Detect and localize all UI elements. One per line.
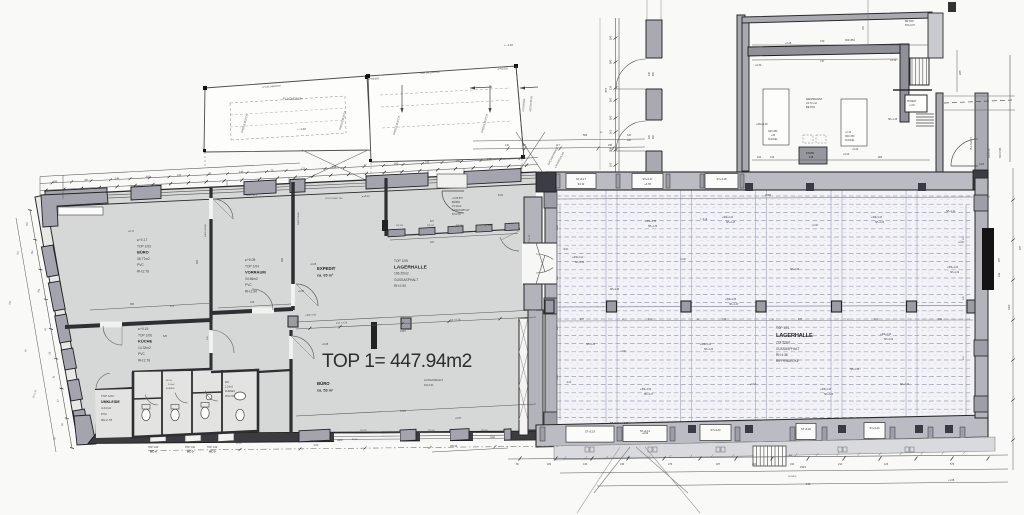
svg-text:FLACHDACH: FLACHDACH (283, 97, 303, 101)
svg-text:BÜRO: BÜRO (317, 381, 330, 386)
svg-text:PW 105: PW 105 (396, 225, 404, 227)
svg-text:106: 106 (53, 179, 58, 183)
svg-text:300×1543: 300×1543 (999, 147, 1002, 158)
svg-text:SH+4.25: SH+4.25 (648, 226, 658, 228)
svg-text:ST+3.18: ST+3.18 (717, 177, 727, 181)
svg-text:150: 150 (425, 160, 430, 164)
svg-text:4.24m2: 4.24m2 (101, 406, 111, 410)
svg-text:BETON: BETON (806, 105, 815, 109)
svg-text:TOP 1/05: TOP 1/05 (394, 259, 408, 263)
svg-text:●+0.08: ●+0.08 (245, 258, 255, 262)
svg-text:KÜCHE: KÜCHE (138, 339, 153, 344)
svg-text:SH+4.36: SH+4.36 (610, 289, 620, 291)
svg-text:120: 120 (627, 134, 632, 137)
svg-text:3.54m2: 3.54m2 (168, 384, 176, 386)
svg-text:SH+4.25: SH+4.25 (875, 222, 885, 224)
svg-text:ST+1.46: ST+1.46 (529, 234, 531, 243)
svg-text:EXPEDIT: EXPEDIT (317, 266, 336, 271)
svg-text:RH 4.36: RH 4.36 (776, 353, 788, 357)
svg-text:TOP 1/03: TOP 1/03 (137, 244, 151, 248)
svg-text:15.44m2: 15.44m2 (452, 205, 462, 208)
svg-text:TOP 1/12: TOP 1/12 (207, 446, 218, 449)
svg-text:ST+3.20: ST+3.20 (801, 427, 811, 431)
svg-text:HZ +2.78: HZ +2.78 (450, 318, 461, 322)
svg-text:+0.03: +0.03 (750, 384, 757, 386)
svg-text:+300+4.43: +300+4.43 (871, 217, 883, 219)
svg-text:575: 575 (950, 463, 955, 466)
svg-text:+0.30: +0.30 (755, 64, 762, 67)
svg-text:35 55: 35 55 (352, 439, 358, 441)
svg-text:DACHRINNE: DACHRINNE (204, 223, 207, 237)
svg-text:GRW: GRW (337, 440, 343, 442)
svg-text:314: 314 (648, 318, 653, 321)
svg-text:300×350: 300×350 (845, 135, 855, 138)
svg-text:SH+4.34: SH+4.34 (946, 211, 956, 213)
svg-text:RH:2.78: RH:2.78 (101, 418, 112, 422)
svg-text:UMKLEIDE: UMKLEIDE (101, 400, 120, 404)
svg-text:PW 90: PW 90 (481, 430, 488, 432)
svg-text:RH:2.90: RH:2.90 (394, 284, 406, 288)
svg-text:+40: +40 (771, 134, 776, 137)
svg-text:+300+4.43: +300+4.43 (820, 389, 832, 391)
svg-text:WC-H: WC-H (150, 451, 157, 454)
svg-text:142 +2.78: 142 +2.78 (336, 321, 348, 325)
svg-text:298: 298 (332, 165, 337, 169)
svg-text:●+0.17: ●+0.17 (137, 238, 147, 242)
svg-text:1083: 1083 (557, 224, 559, 230)
svg-text:214: 214 (838, 463, 843, 466)
svg-text:TOP 1/06: TOP 1/06 (138, 333, 152, 337)
svg-text:HEIZRAUM: HEIZRAUM (806, 97, 822, 101)
svg-text:140: 140 (456, 158, 461, 162)
svg-text:FLIESEN: FLIESEN (225, 390, 235, 393)
svg-text:PVC: PVC (138, 352, 145, 356)
svg-text:GUSSASPHALT: GUSSASPHALT (776, 347, 799, 351)
svg-text:130: 130 (583, 463, 588, 466)
svg-text:TOP 1/01: TOP 1/01 (776, 326, 790, 330)
svg-text:565: 565 (583, 134, 588, 137)
svg-text:PVC: PVC (137, 263, 144, 267)
svg-text:+0.02: +0.02 (958, 242, 965, 244)
svg-text:+0.00: +0.00 (680, 259, 687, 261)
svg-text:180: 180 (547, 463, 552, 466)
svg-text:SH+4.26: SH+4.26 (704, 349, 714, 351)
svg-text:561: 561 (195, 259, 199, 264)
svg-text:+300+4.44: +300+4.44 (572, 257, 584, 259)
svg-text:TOP 1/04: TOP 1/04 (245, 264, 259, 268)
svg-text:242: 242 (998, 272, 1001, 277)
svg-text:PW 90: PW 90 (428, 430, 435, 432)
svg-text:PW 90: PW 90 (360, 430, 367, 432)
svg-text:PVC: PVC (101, 412, 108, 416)
svg-text:206: 206 (609, 35, 613, 40)
svg-text:+0.35: +0.35 (785, 42, 792, 45)
svg-text:300×350: 300×350 (768, 130, 778, 133)
svg-text:SH+4.26: SH+4.26 (790, 269, 800, 271)
svg-text:GUSSASPHALT: GUSSASPHALT (394, 278, 418, 282)
svg-text:134: 134 (770, 156, 775, 159)
svg-text:365: 365 (130, 303, 135, 306)
svg-text:ST+2.14 ↔ -0.00: ST+2.14 ↔ -0.00 (610, 422, 629, 425)
svg-text:BÜRO: BÜRO (452, 200, 461, 204)
svg-text:RH+3.37: RH+3.37 (905, 24, 916, 27)
svg-text:+4.78: +4.78 (644, 182, 651, 186)
svg-text:080: 080 (609, 59, 613, 64)
svg-text:015: 015 (609, 129, 613, 134)
svg-text:120: 120 (648, 134, 651, 139)
svg-text:180: 180 (522, 144, 527, 147)
svg-text:PODEST: PODEST (907, 101, 917, 103)
svg-text:+ -4.48: + -4.48 (504, 43, 513, 47)
svg-text:ST+3.17: ST+3.17 (643, 177, 653, 181)
svg-text:050: 050 (609, 115, 613, 120)
svg-text:ca. 65 m²: ca. 65 m² (317, 274, 334, 278)
svg-text:RH:2.78: RH:2.78 (138, 359, 150, 363)
svg-text:1083: 1083 (557, 374, 559, 380)
svg-text:+300+4.44: +300+4.44 (700, 344, 712, 346)
svg-text:43.70 m2: 43.70 m2 (806, 101, 817, 105)
svg-text:+FRD500: +FRD500 (497, 66, 509, 71)
svg-text:140: 140 (505, 144, 510, 147)
svg-text:2068: 2068 (765, 193, 771, 197)
svg-text:106.35m2: 106.35m2 (394, 272, 409, 276)
svg-text:36.77m2: 36.77m2 (137, 257, 150, 261)
svg-text:●+2.14: ●+2.14 (362, 195, 370, 198)
svg-text:-3.98: -3.98 (805, 484, 811, 486)
svg-text:300×0.66: 300×0.66 (988, 148, 991, 158)
svg-text:94 10: 94 10 (578, 182, 585, 186)
svg-text:130: 130 (609, 85, 613, 90)
svg-text:PVC: PVC (245, 283, 252, 287)
svg-text:484: 484 (878, 156, 883, 159)
svg-text:SH+4.25: SH+4.25 (575, 262, 585, 264)
svg-text:+0.08: +0.08 (310, 263, 317, 266)
svg-text:300: 300 (609, 97, 613, 102)
svg-text:+300+4.45: +300+4.45 (645, 221, 657, 223)
svg-text:+0.07 371: +0.07 371 (246, 194, 257, 197)
svg-text:FLIESEN: FLIESEN (166, 388, 175, 390)
svg-text:RH:2.39: RH:2.39 (225, 395, 234, 398)
svg-text:146: 146 (115, 176, 120, 180)
svg-text:RIPPENDECKE: RIPPENDECKE (776, 359, 799, 363)
svg-text:SH+4.25: SH+4.25 (824, 394, 834, 396)
svg-text:148: 148 (487, 157, 492, 161)
svg-text:SOCKEL: SOCKEL (845, 139, 855, 142)
svg-text:SH+4.29: SH+4.29 (884, 339, 894, 341)
svg-text:300: 300 (652, 71, 655, 76)
svg-text:PW 105: PW 105 (456, 225, 464, 227)
svg-text:PW 105: PW 105 (427, 225, 435, 227)
svg-text:(9.9MPf): (9.9MPf) (788, 476, 797, 478)
svg-text:743: 743 (820, 39, 825, 43)
svg-text:625: 625 (163, 335, 168, 338)
svg-text:+1.68: +1.68 (948, 479, 955, 482)
svg-text:TOP 1= 447.94m2: TOP 1= 447.94m2 (322, 351, 472, 372)
svg-text:●+0.15: ●+0.15 (138, 327, 148, 331)
svg-text:WC-H: WC-H (166, 380, 172, 382)
svg-text:148: 148 (239, 170, 244, 174)
svg-text:PULTDACH: PULTDACH (970, 137, 973, 150)
svg-text:B.20: B.20 (498, 194, 504, 197)
svg-text:34.56m2: 34.56m2 (245, 277, 258, 281)
svg-text:SH+4.26: SH+4.26 (900, 384, 910, 386)
svg-text:160: 160 (394, 162, 399, 166)
svg-text:GUSSASPHALT: GUSSASPHALT (424, 378, 443, 382)
svg-text:237: 237 (998, 257, 1001, 262)
svg-text:317: 317 (798, 318, 803, 321)
svg-text:+300+3.28: +300+3.28 (756, 123, 768, 126)
svg-text:2323: 2323 (800, 465, 806, 469)
svg-text:ST+3.20: ST+3.20 (870, 426, 880, 430)
svg-text:561: 561 (280, 257, 284, 262)
svg-text:1049: 1049 (400, 329, 407, 333)
svg-text:312: 312 (938, 318, 943, 321)
svg-text:+300+4.45: +300+4.45 (947, 267, 959, 269)
svg-text:ST+3.17: ST+3.17 (576, 177, 586, 181)
svg-text:+0.08: +0.08 (322, 343, 329, 346)
svg-text:110: 110 (146, 175, 151, 179)
svg-text:237: 237 (1019, 245, 1022, 250)
svg-text:SH+4.25: SH+4.25 (729, 304, 739, 306)
svg-text:123: 123 (884, 463, 889, 466)
svg-text:RH:2.91: RH:2.91 (424, 383, 434, 387)
svg-text:116: 116 (752, 463, 757, 466)
svg-text:774.52m2: 774.52m2 (776, 341, 790, 345)
svg-text:+0.10: +0.10 (890, 59, 897, 62)
svg-text:SOCKEL: SOCKEL (768, 138, 778, 141)
svg-text:SOK.DOWEL 700: SOK.DOWEL 700 (325, 198, 343, 200)
svg-text:PW 105: PW 105 (484, 225, 492, 227)
svg-text:171: 171 (301, 166, 306, 170)
svg-text:GUSSASPHALT: GUSSASPHALT (452, 209, 470, 212)
svg-text:190: 190 (790, 463, 795, 466)
svg-text:LAGERHALLE: LAGERHALLE (776, 333, 813, 339)
svg-text:WC-D: WC-D (187, 451, 194, 454)
svg-text:277: 277 (580, 318, 585, 321)
svg-text:+0.17: +0.17 (128, 230, 135, 233)
svg-text:+0.00: +0.00 (620, 351, 627, 353)
svg-text:KAMIN: KAMIN (806, 151, 814, 155)
svg-text:RH 2.92: RH 2.92 (452, 213, 461, 216)
svg-text:+300+4.45: +300+4.45 (880, 334, 892, 336)
svg-text:+0.07: +0.07 (455, 417, 462, 420)
svg-text:131: 131 (177, 173, 182, 177)
svg-text:+0.10: +0.10 (845, 131, 852, 134)
svg-text:2323: 2323 (1008, 304, 1011, 310)
svg-text:+300+4.45: +300+4.45 (725, 299, 737, 301)
svg-text:298: 298 (608, 144, 613, 147)
svg-text:SH+4.26: SH+4.26 (726, 222, 736, 224)
svg-text:SH+4.29: SH+4.29 (950, 272, 960, 274)
svg-text:+ -4.48: + -4.48 (297, 127, 306, 131)
svg-text:TOP 1/02: TOP 1/02 (101, 394, 114, 398)
svg-text:BETON: BETON (905, 20, 914, 23)
svg-text:-0.02: -0.02 (566, 382, 572, 384)
svg-text:SH+4.29: SH+4.29 (850, 369, 860, 371)
svg-text:TOP 1/10: TOP 1/10 (148, 446, 159, 449)
svg-text:RH:2.90: RH:2.90 (245, 290, 257, 294)
svg-text:= -3.19: = -3.19 (700, 219, 708, 221)
svg-text:427: 427 (430, 240, 435, 244)
svg-text:130: 130 (648, 71, 651, 76)
svg-text:ca. 53 m³: ca. 53 m³ (317, 389, 334, 393)
svg-text:WC-D: WC-D (209, 451, 216, 454)
svg-text:SH+4.25: SH+4.25 (586, 344, 596, 346)
svg-text:+300+4.43: +300+4.43 (640, 389, 652, 391)
svg-text:LAGERHALLE: LAGERHALLE (394, 264, 428, 270)
svg-text:+300+4.43: +300+4.43 (722, 217, 734, 219)
svg-text:200: 200 (652, 134, 655, 139)
svg-text:WC: WC (225, 381, 229, 384)
svg-text:187: 187 (716, 463, 721, 466)
svg-text:276: 276 (668, 463, 673, 466)
svg-text:+0.22: +0.22 (843, 153, 850, 156)
svg-text:SH+1.28: SH+1.28 (888, 119, 898, 121)
svg-text:GGF: GGF (490, 437, 496, 439)
svg-text:ST+2.13: ST+2.13 (310, 441, 319, 443)
svg-text:BÜRO: BÜRO (137, 250, 149, 255)
svg-text:+0.00: +0.00 (642, 432, 649, 435)
svg-text:857: 857 (604, 87, 608, 92)
svg-text:TOP 1/11: TOP 1/11 (185, 446, 196, 449)
svg-text:2423: 2423 (979, 164, 985, 166)
svg-text:1049: 1049 (400, 409, 407, 413)
svg-text:14.32m2: 14.32m2 (138, 346, 151, 350)
svg-text:-0.00: -0.00 (313, 445, 319, 447)
svg-text:-0.03: -0.03 (563, 249, 569, 251)
svg-text:35 25: 35 25 (236, 443, 242, 445)
svg-text:ST+3.20: ST+3.20 (711, 428, 721, 432)
svg-text:1.10m2: 1.10m2 (225, 386, 234, 389)
svg-text:DACHRINNE: DACHRINNE (297, 211, 300, 225)
svg-text:316: 316 (722, 318, 727, 321)
svg-text:103: 103 (609, 162, 613, 167)
svg-text:225: 225 (958, 70, 962, 75)
svg-text:242: 242 (757, 156, 762, 159)
svg-text:737: 737 (820, 59, 825, 63)
svg-text:166: 166 (620, 463, 625, 466)
svg-text:314: 314 (874, 318, 879, 321)
svg-text:117: 117 (556, 144, 560, 147)
svg-text:ST+3.19: ST+3.19 (585, 430, 595, 434)
svg-text:+1.52: +1.52 (909, 105, 916, 107)
svg-text:156: 156 (809, 155, 814, 159)
svg-text:+0.05: +0.05 (298, 291, 305, 293)
svg-text:+0.22: +0.22 (852, 148, 859, 151)
svg-text:SH+4.27: SH+4.27 (644, 394, 654, 396)
svg-text:300×354: 300×354 (845, 39, 855, 42)
svg-text:RH:2.78: RH:2.78 (137, 270, 149, 274)
svg-text:+0.00: +0.00 (812, 225, 819, 227)
svg-text:200: 200 (627, 139, 632, 142)
svg-text:VORRAUM: VORRAUM (245, 270, 266, 275)
